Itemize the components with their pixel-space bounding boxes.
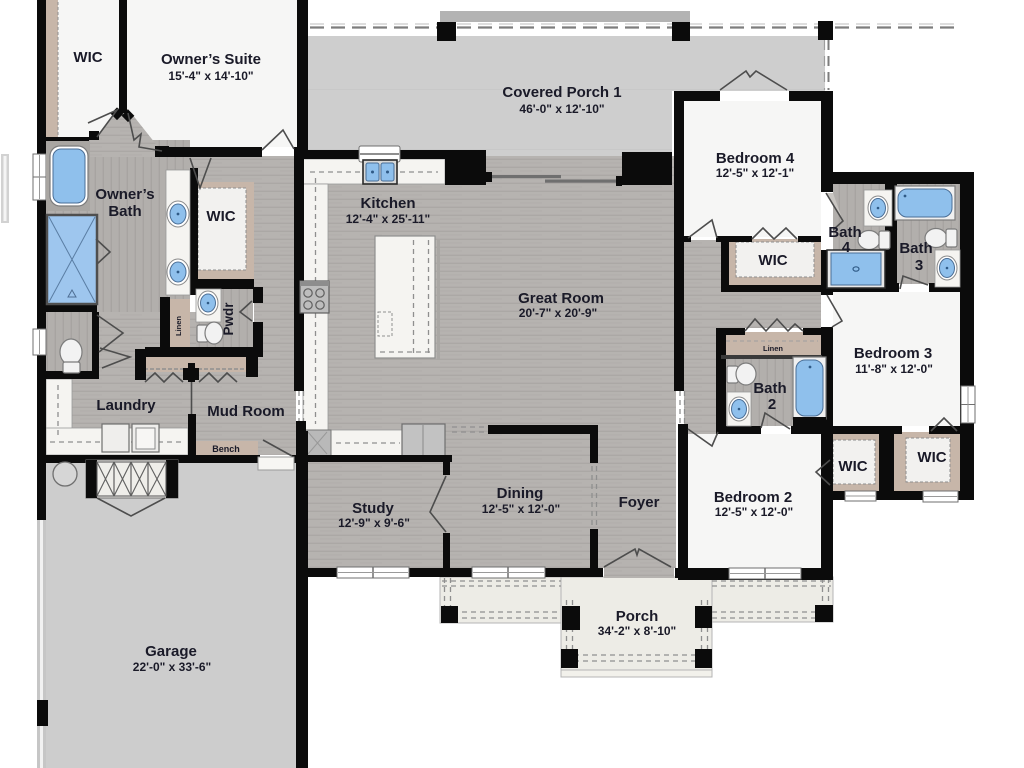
svg-text:20'-7" x 20'-9": 20'-7" x 20'-9" [519,306,597,320]
svg-text:Garage: Garage [145,643,197,660]
svg-text:Laundry: Laundry [96,397,156,414]
svg-text:12'-5" x 12'-1": 12'-5" x 12'-1" [716,166,794,180]
svg-text:3: 3 [915,257,923,274]
svg-text:Linen: Linen [763,344,783,353]
svg-text:Bench: Bench [212,444,240,454]
svg-text:Bath: Bath [108,203,141,220]
svg-text:WIC: WIC [838,458,867,475]
svg-text:22'-0" x 33'-6": 22'-0" x 33'-6" [133,660,211,674]
svg-text:12'-5" x 12'-0": 12'-5" x 12'-0" [715,505,793,519]
svg-text:Owner’s Suite: Owner’s Suite [161,51,261,68]
svg-text:15'-4" x 14'-10": 15'-4" x 14'-10" [168,69,253,83]
svg-text:46'-0" x 12'-10": 46'-0" x 12'-10" [519,102,604,116]
svg-text:Covered Porch 1: Covered Porch 1 [502,84,621,101]
svg-text:WIC: WIC [206,208,235,225]
svg-text:Bath: Bath [899,240,932,257]
svg-text:Pwdr: Pwdr [221,302,236,336]
svg-text:12'-5" x 12'-0": 12'-5" x 12'-0" [482,502,560,516]
svg-text:Owner’s: Owner’s [95,186,154,203]
svg-text:WIC: WIC [73,49,102,66]
svg-text:12'-4" x 25'-11": 12'-4" x 25'-11" [346,212,430,226]
svg-text:Linen: Linen [174,316,183,336]
svg-text:Study: Study [352,500,394,517]
svg-text:Bath: Bath [753,380,786,397]
svg-text:Bedroom 3: Bedroom 3 [854,345,932,362]
svg-text:WIC: WIC [758,252,787,269]
svg-text:Dining: Dining [497,485,544,502]
svg-text:Bedroom 4: Bedroom 4 [716,150,795,167]
svg-text:Foyer: Foyer [619,494,660,511]
svg-text:12'-9" x 9'-6": 12'-9" x 9'-6" [338,516,410,530]
svg-text:WIC: WIC [917,449,946,466]
svg-text:Porch: Porch [616,608,659,625]
svg-text:Kitchen: Kitchen [360,195,415,212]
svg-text:34'-2" x 8'-10": 34'-2" x 8'-10" [598,624,676,638]
svg-text:Great Room: Great Room [518,290,604,307]
svg-text:Bedroom 2: Bedroom 2 [714,489,792,506]
svg-text:11'-8" x 12'-0": 11'-8" x 12'-0" [855,362,933,376]
svg-text:2: 2 [768,396,776,413]
svg-text:4: 4 [842,239,851,256]
svg-text:Mud Room: Mud Room [207,403,284,420]
